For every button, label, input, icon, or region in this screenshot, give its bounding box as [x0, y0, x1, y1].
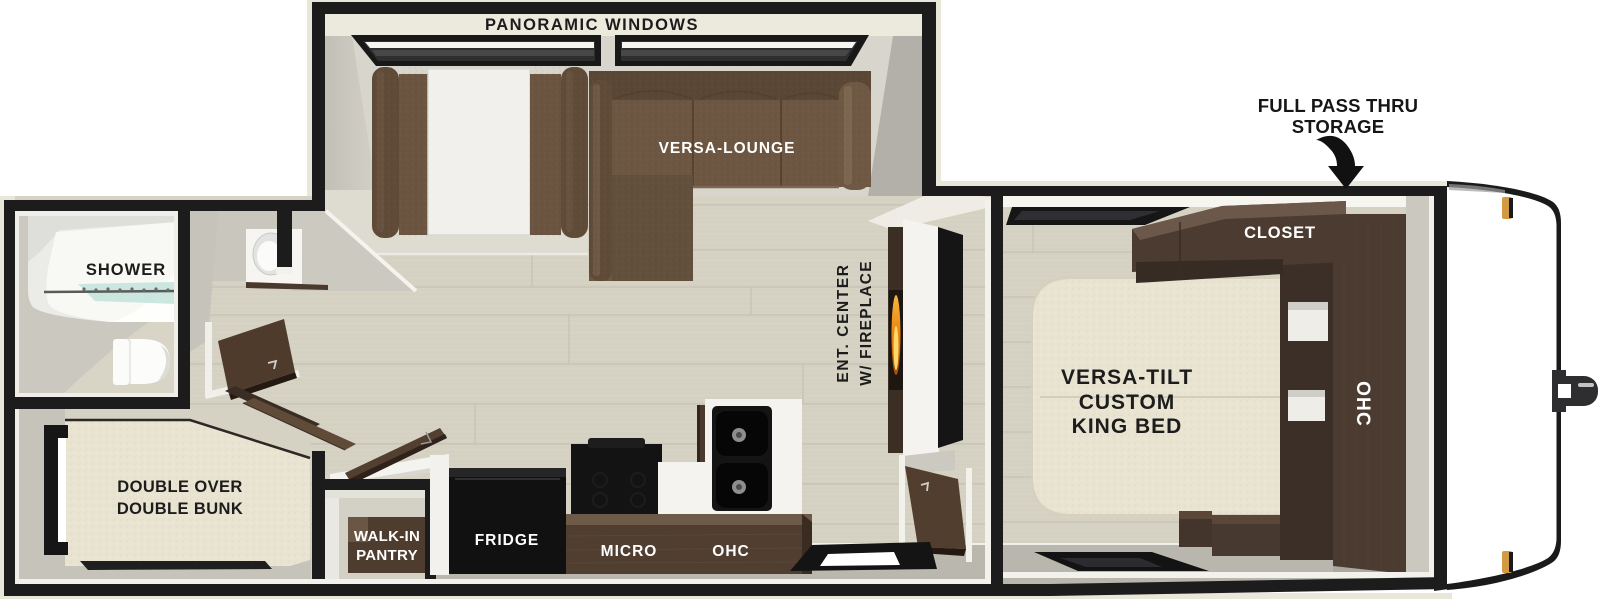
- svg-text:FULL PASS THRU: FULL PASS THRU: [1258, 95, 1418, 116]
- svg-text:STORAGE: STORAGE: [1292, 116, 1385, 137]
- svg-text:CLOSET: CLOSET: [1244, 224, 1316, 242]
- svg-text:DOUBLE BUNK: DOUBLE BUNK: [117, 500, 243, 518]
- svg-text:FRIDGE: FRIDGE: [475, 532, 540, 549]
- svg-text:VERSA-LOUNGE: VERSA-LOUNGE: [659, 140, 796, 157]
- svg-text:OHC: OHC: [712, 543, 749, 560]
- svg-text:SHOWER: SHOWER: [86, 261, 166, 279]
- svg-text:VERSA-TILT: VERSA-TILT: [1061, 366, 1193, 389]
- svg-text:OHC: OHC: [1352, 381, 1373, 427]
- svg-text:CUSTOM: CUSTOM: [1079, 391, 1176, 414]
- svg-text:DOUBLE OVER: DOUBLE OVER: [117, 478, 242, 496]
- svg-text:KING BED: KING BED: [1072, 415, 1183, 438]
- svg-text:W/ FIREPLACE: W/ FIREPLACE: [858, 260, 875, 385]
- svg-text:PANORAMIC WINDOWS: PANORAMIC WINDOWS: [485, 16, 699, 34]
- svg-text:MICRO: MICRO: [601, 543, 658, 560]
- svg-text:PANTRY: PANTRY: [356, 547, 418, 564]
- svg-text:WALK-IN: WALK-IN: [354, 528, 420, 545]
- svg-text:ENT. CENTER: ENT. CENTER: [835, 263, 852, 382]
